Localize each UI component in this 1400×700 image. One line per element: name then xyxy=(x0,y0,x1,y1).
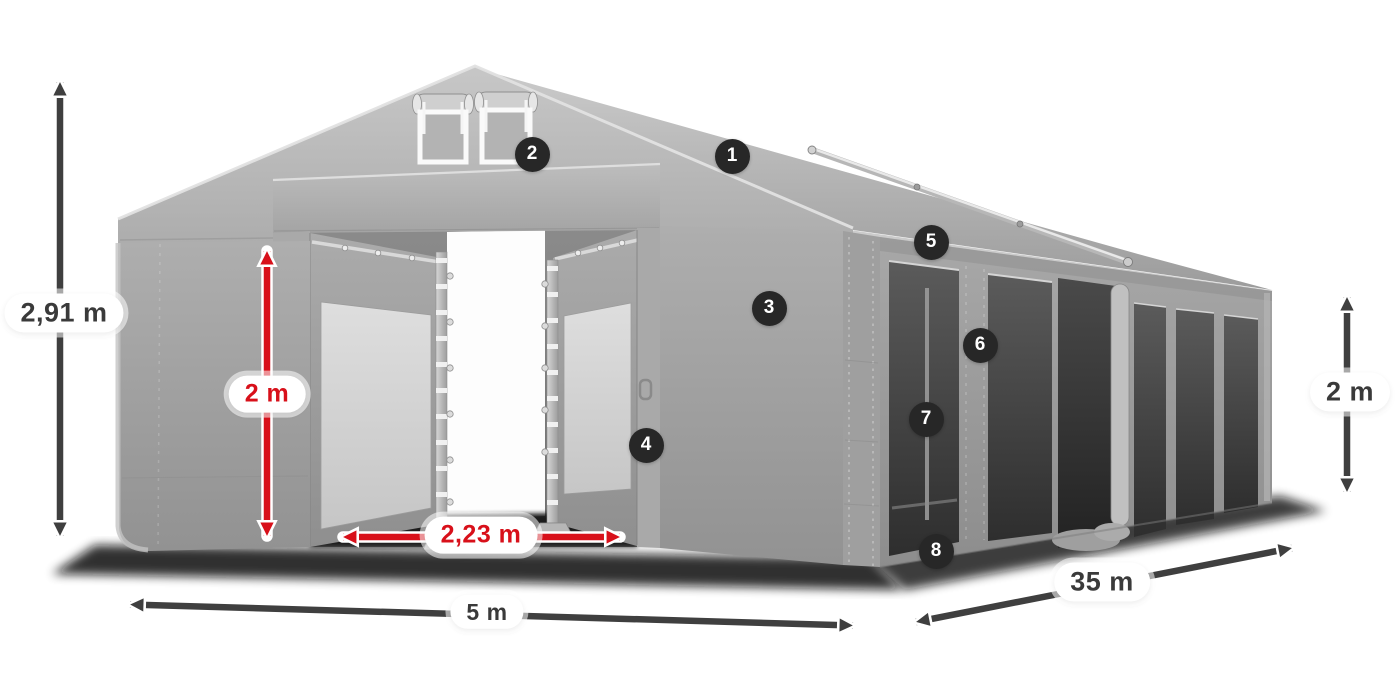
marker-4: 4 xyxy=(629,428,664,463)
side-window-5 xyxy=(1224,315,1258,513)
side-wall xyxy=(880,237,1272,567)
marker-7: 7 xyxy=(909,402,944,437)
marker-6: 6 xyxy=(963,328,998,363)
marker-1: 1 xyxy=(715,139,750,174)
marker-3: 3 xyxy=(752,291,787,326)
side-doorway xyxy=(1058,278,1116,548)
side-window-4 xyxy=(1176,309,1214,525)
side-height-label: 2 m xyxy=(1310,372,1390,411)
marker-8: 8 xyxy=(919,534,954,569)
total-height-label: 2,91 m xyxy=(4,293,123,332)
marker-5: 5 xyxy=(914,225,949,260)
side-window-2 xyxy=(988,274,1052,541)
entrance-width-label: 2,23 m xyxy=(425,517,538,554)
side-window-3 xyxy=(1134,303,1166,537)
front-right-wall xyxy=(660,226,880,567)
vent-window-left xyxy=(413,94,474,162)
tent-dimension-diagram: 2,91 m 2 m 2,23 m 5 m 35 m 2 m 1 2 3 4 5… xyxy=(0,0,1400,700)
left-door-panel xyxy=(310,233,447,547)
marker-2: 2 xyxy=(515,137,550,172)
entrance-height-label: 2 m xyxy=(229,376,306,413)
tent-illustration xyxy=(0,0,1400,700)
rolled-curtain-icon xyxy=(1111,284,1129,526)
width-label: 5 m xyxy=(450,595,523,629)
length-label: 35 m xyxy=(1054,562,1150,601)
